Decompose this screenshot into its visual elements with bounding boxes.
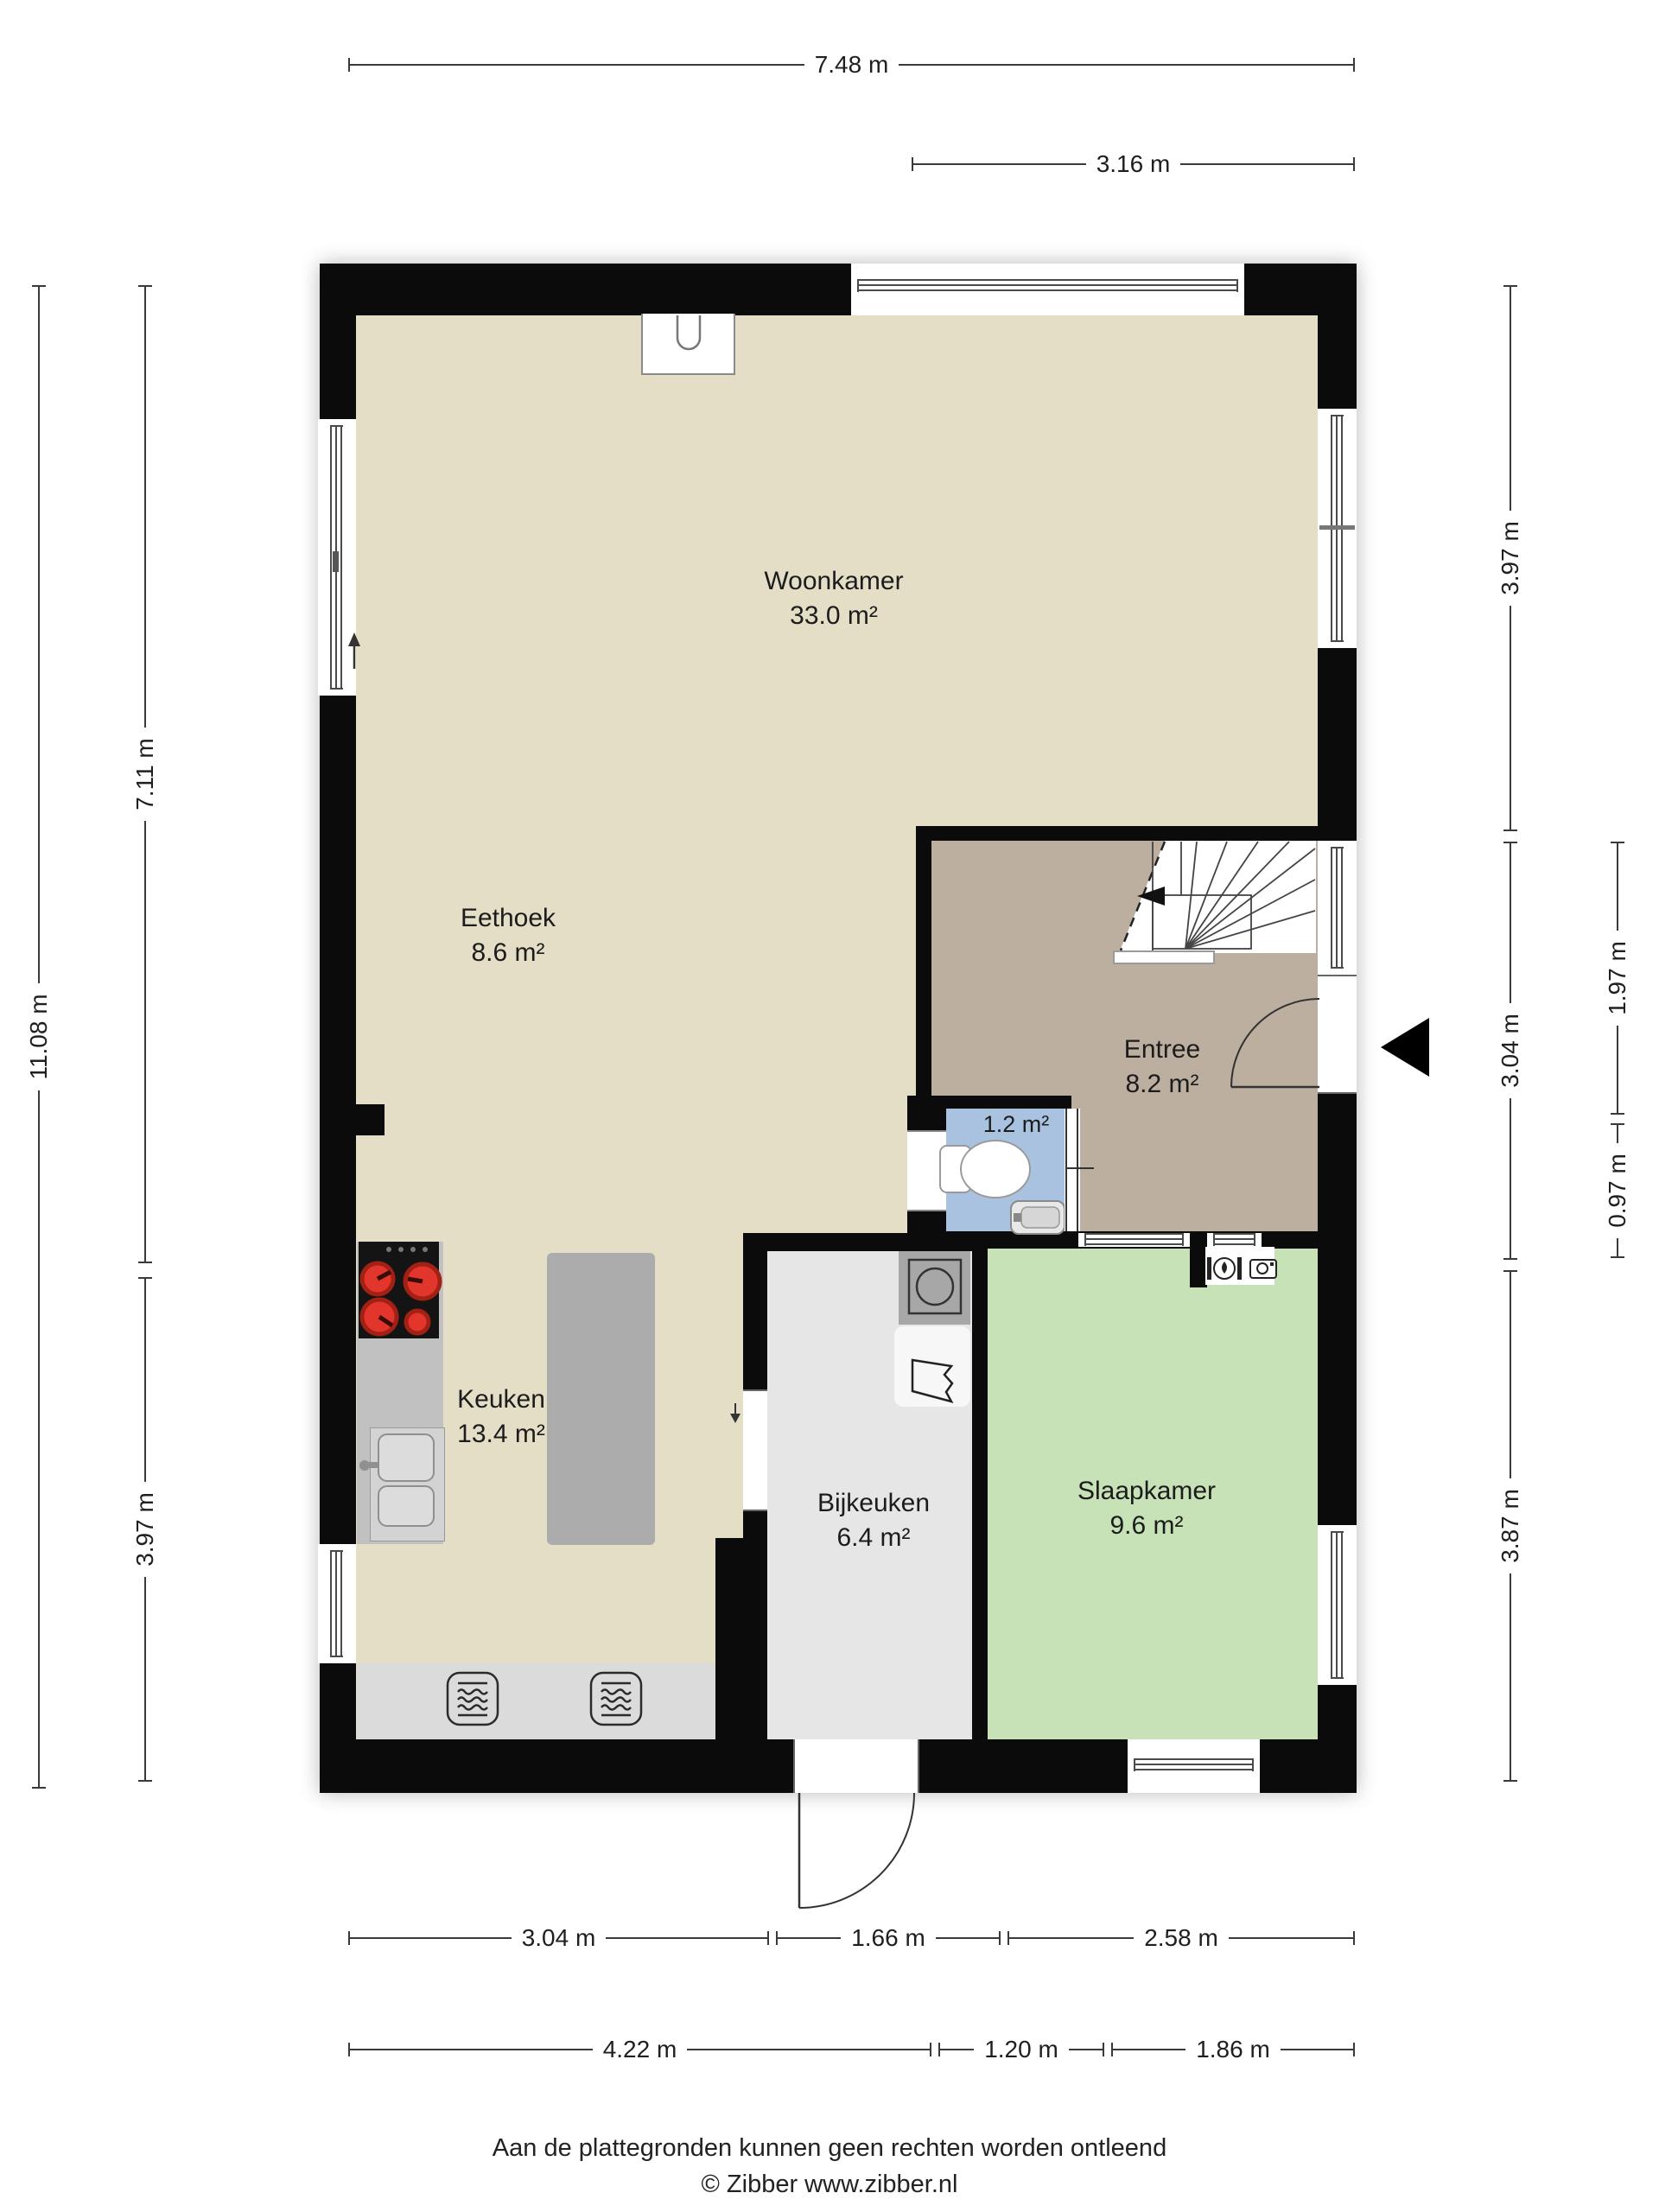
back-door-opening (793, 1739, 919, 1793)
dim-top-right: 3.16 m (912, 149, 1355, 179)
front-door-opening (1318, 975, 1357, 1094)
dim-bottom-outer-left: 4.22 m (348, 2035, 931, 2064)
stairs-area (1119, 841, 1316, 953)
kitchen-sink-unit (370, 1427, 445, 1541)
dim-bottom-slaapkamer: 2.58 m (1007, 1923, 1355, 1953)
wall-right-2 (1318, 1090, 1357, 1525)
wall-bottom-2 (916, 1739, 1128, 1793)
label-toilet: 1.2 m² (983, 1111, 1050, 1137)
dim-left-upper: 7.11 m (130, 285, 160, 1263)
disclaimer-text: Aan de plattegronden kunnen geen rechten… (0, 2134, 1659, 2163)
window-left-upper (318, 419, 356, 696)
bottom-counter (357, 1663, 715, 1739)
wall-toilet-top (907, 1096, 1071, 1109)
dim-bottom-bijkeuken: 1.66 m (776, 1923, 1001, 1953)
window-left-lower (318, 1544, 356, 1663)
stair-bottom-step (1113, 950, 1215, 964)
label-slaapkamer: Slaapkamer 9.6 m² (1077, 1474, 1216, 1543)
wall-bottom-1 (320, 1739, 793, 1793)
wall-entree-top (916, 826, 1318, 841)
dim-bottom-outer-right: 1.86 m (1111, 2035, 1355, 2064)
room-area: 6.4 m² (817, 1521, 930, 1555)
window-bottom-slaapkamer (1128, 1739, 1260, 1793)
kitchen-island (547, 1253, 655, 1545)
wall-corner-topright (1318, 264, 1357, 409)
dim-right-inner-lower: 0.97 m (1603, 1123, 1632, 1258)
room-name: Entree (1124, 1033, 1200, 1067)
toilet-door-opening (907, 1130, 946, 1211)
wall-bijkeuken-slaapkamer (972, 1249, 988, 1739)
cooktop (359, 1242, 439, 1338)
dim-right-lower: 3.87 m (1496, 1270, 1525, 1782)
copyright-text: © Zibber www.zibber.nl (0, 2171, 1659, 2199)
wall-right-1 (1318, 648, 1357, 841)
wall-left-1 (320, 264, 356, 419)
meter-niche (1205, 1247, 1274, 1285)
dim-bottom-keuken: 3.04 m (348, 1923, 769, 1953)
wall-block-entree-bottom (1190, 1231, 1207, 1287)
room-fill-eethoek (352, 826, 916, 1251)
room-area: 8.6 m² (461, 936, 556, 970)
wall-entree-left (916, 826, 931, 1109)
room-area: 1.2 m² (983, 1111, 1050, 1137)
window-right-woonkamer (1318, 409, 1357, 648)
washer-pad (899, 1249, 970, 1325)
entrance-arrow-icon (1381, 1018, 1429, 1077)
room-area: 33.0 m² (764, 599, 903, 633)
room-name: Woonkamer (764, 564, 903, 599)
dim-right-inner-upper: 1.97 m (1603, 842, 1632, 1115)
keuken-bijkeuken-door-opening (743, 1389, 767, 1511)
dim-right-upper: 3.97 m (1496, 285, 1525, 831)
room-area: 8.2 m² (1124, 1067, 1200, 1102)
room-name: Keuken (457, 1382, 545, 1417)
room-area: 13.4 m² (457, 1417, 545, 1452)
label-entree: Entree 8.2 m² (1124, 1033, 1200, 1102)
window-right-slaapkamer (1318, 1525, 1357, 1685)
room-name: Bijkeuken (817, 1486, 930, 1521)
label-woonkamer: Woonkamer 33.0 m² (764, 564, 903, 633)
label-eethoek: Eethoek 8.6 m² (461, 901, 556, 970)
flue-box (641, 314, 735, 375)
back-door-swing-icon (799, 1793, 914, 1908)
wall-keuken-bijkeuken-thick (715, 1538, 743, 1739)
wall-bijkeuken-top (743, 1233, 988, 1251)
wall-toilet-left-a (907, 1109, 946, 1130)
dim-top-overall: 7.48 m (348, 50, 1355, 79)
room-area: 9.6 m² (1077, 1509, 1216, 1543)
room-name: Slaapkamer (1077, 1474, 1216, 1509)
window-top (851, 264, 1244, 315)
dim-left-lower: 3.97 m (130, 1277, 160, 1782)
dim-bottom-outer-door: 1.20 m (938, 2035, 1104, 2064)
wall-left-2 (320, 696, 356, 1544)
floorplan-page: Woonkamer 33.0 m² Eethoek 8.6 m² Entree … (0, 0, 1659, 2212)
wall-bottom-3 (1260, 1739, 1357, 1793)
wall-nib-eethoek (356, 1104, 385, 1135)
dim-right-middle: 3.04 m (1496, 842, 1525, 1260)
dim-left-overall: 11.08 m (24, 285, 54, 1789)
label-keuken: Keuken 13.4 m² (457, 1382, 545, 1452)
boiler-card (894, 1326, 970, 1407)
wall-toilet-left-b (907, 1208, 946, 1231)
window-right-entree (1318, 841, 1357, 975)
label-bijkeuken: Bijkeuken 6.4 m² (817, 1486, 930, 1555)
entree-bedroom-glass-1 (1078, 1233, 1190, 1247)
entree-bedroom-glass-2 (1207, 1233, 1262, 1247)
wall-top-left (320, 264, 851, 315)
room-name: Eethoek (461, 901, 556, 936)
